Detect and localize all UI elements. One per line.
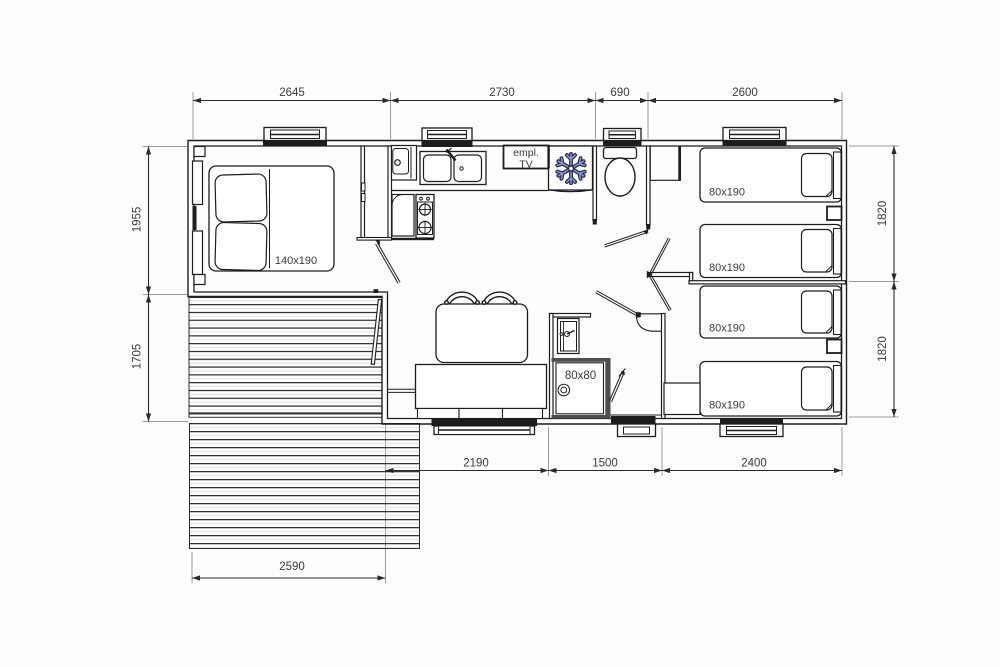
svg-text:2190: 2190 xyxy=(463,458,489,470)
svg-text:140x190: 140x190 xyxy=(275,255,317,267)
svg-text:1705: 1705 xyxy=(132,344,144,370)
svg-text:690: 690 xyxy=(610,87,629,99)
svg-text:1820: 1820 xyxy=(877,201,889,227)
svg-text:2730: 2730 xyxy=(489,87,515,99)
svg-text:1500: 1500 xyxy=(592,458,618,470)
svg-text:1955: 1955 xyxy=(132,207,144,233)
svg-text:empl.: empl. xyxy=(513,147,539,159)
svg-text:2590: 2590 xyxy=(279,561,305,573)
svg-text:80x190: 80x190 xyxy=(709,400,745,412)
svg-text:2400: 2400 xyxy=(741,458,767,470)
svg-text:80x80: 80x80 xyxy=(565,370,596,382)
svg-text:TV: TV xyxy=(519,159,532,171)
svg-text:2600: 2600 xyxy=(732,87,758,99)
svg-text:2645: 2645 xyxy=(279,87,305,99)
svg-text:1820: 1820 xyxy=(877,336,889,362)
svg-text:80x190: 80x190 xyxy=(709,262,745,274)
svg-text:80x190: 80x190 xyxy=(709,323,745,335)
svg-text:80x190: 80x190 xyxy=(709,187,745,199)
